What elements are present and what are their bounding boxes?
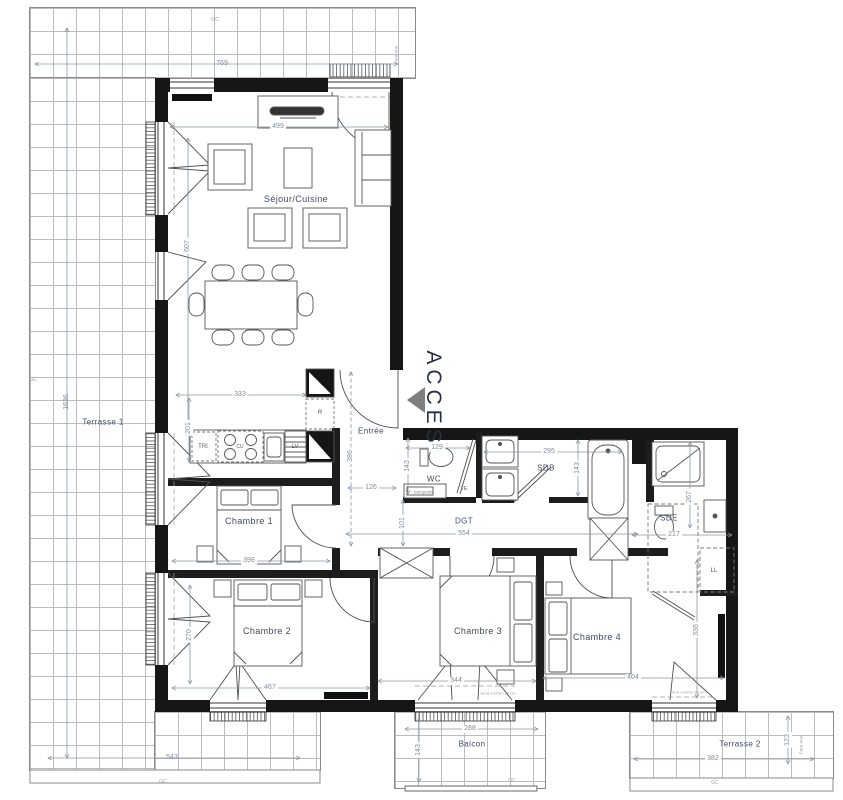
room-label-chambre-2: Chambre 2 xyxy=(243,626,291,636)
room-label-balcon: Balcon xyxy=(459,740,486,749)
shower-icon xyxy=(652,442,704,486)
privacy-screen-label: Pare-vue xyxy=(394,46,399,64)
dim-entree-height: 386 xyxy=(347,448,355,464)
dim-terrasse1-bottom: 543 xyxy=(164,754,180,762)
bed-chambre-3 xyxy=(440,558,536,684)
room-label-sdb: SDB xyxy=(537,464,555,473)
kitchen-fixtures xyxy=(190,369,334,463)
dim-terrasse1-left: 1636 xyxy=(63,392,71,412)
dim-balcon-height: 143 xyxy=(415,742,423,758)
washbasin-icon xyxy=(482,436,518,467)
bed-chambre-2 xyxy=(214,580,322,666)
closet-icon xyxy=(380,548,433,578)
dim-sejour-width: 499 xyxy=(270,123,286,131)
dim-entree-width: 126 xyxy=(363,484,379,492)
bench-label: banquette xyxy=(414,490,434,495)
dim-terrasse2-height: 123 xyxy=(784,732,792,748)
dim-sdb-height: 143 xyxy=(574,460,582,476)
sofa-icon xyxy=(355,130,391,206)
room-label-entree: Entrée xyxy=(358,427,384,436)
dishwasher-label: LV xyxy=(292,444,299,450)
washbasin-icon xyxy=(704,500,726,532)
sink-icon xyxy=(264,433,284,461)
dim-wc-height: 143 xyxy=(404,458,412,474)
dim-balcon-width: 288 xyxy=(462,725,478,733)
dim-chambre4-height: 336 xyxy=(693,622,701,638)
dim-terrasse1-top: 769 xyxy=(214,60,230,68)
tri-label: TRI xyxy=(198,444,208,450)
threshold-label: Seuil environ 15 cm xyxy=(670,690,705,695)
threshold-label: Seuil environ 15 cm xyxy=(480,691,515,696)
dim-sejour-height: 607 xyxy=(184,238,192,254)
sanitary-fixtures xyxy=(380,436,734,592)
room-label-terrasse-1: Terrasse 1 xyxy=(82,418,123,427)
dim-dgt-height: 101 xyxy=(399,515,407,531)
cupboard-icon xyxy=(306,369,334,397)
fridge-label: R xyxy=(318,410,322,416)
dim-sde-width: 217 xyxy=(666,531,682,539)
washbasin-icon xyxy=(482,469,518,500)
dining-table-icon xyxy=(189,265,313,345)
armchair-icon xyxy=(303,208,347,248)
dim-chambre2-height: 270 xyxy=(186,627,194,643)
room-label-wc: WC xyxy=(427,475,441,484)
room-label-terrasse-2: Terrasse 2 xyxy=(719,740,760,749)
room-label-sejour: Séjour/Cuisine xyxy=(264,194,328,204)
room-label-sde: SDE xyxy=(660,514,678,523)
living-room-furniture xyxy=(189,96,391,345)
electrical-panel-label: TE xyxy=(460,486,467,492)
privacy-screen-label: Pare-vue xyxy=(799,736,804,754)
guardrail-label: GC xyxy=(29,377,37,383)
guardrail-label: GC xyxy=(211,17,219,23)
guardrail-label: GC xyxy=(159,779,167,785)
dim-chambre2-width: 467 xyxy=(262,684,278,692)
room-label-chambre-4: Chambre 4 xyxy=(573,632,621,642)
coffee-table-icon xyxy=(284,148,312,188)
guardrail-label: GC xyxy=(711,780,719,786)
dim-sdb-width: 295 xyxy=(541,448,557,456)
dim-sde-height: 267 xyxy=(686,489,694,505)
room-label-dgt: DGT xyxy=(455,517,473,526)
armchair-icon xyxy=(208,144,252,190)
dim-chambre1-width: 398 xyxy=(241,557,257,565)
dim-terrasse2-width: 382 xyxy=(705,755,721,763)
dim-kitchen-height: 201 xyxy=(185,420,193,436)
dim-kitchen-width: 333 xyxy=(232,391,248,399)
room-label-chambre-1: Chambre 1 xyxy=(225,516,273,526)
washing-machine-label: LL xyxy=(711,568,718,574)
cupboard-icon xyxy=(306,431,334,462)
hob-label: CU xyxy=(236,444,243,450)
dim-dgt-width: 554 xyxy=(456,530,472,538)
armchair-icon xyxy=(248,208,292,248)
guardrail-label: GC xyxy=(508,778,516,784)
dim-chambre4-width: 404 xyxy=(625,674,641,682)
floor-plan: Séjour/Cuisine Entrée WC SDB SDE DGT Cha… xyxy=(0,0,843,800)
access-label: ACCES xyxy=(421,350,445,447)
duct-closet-icon xyxy=(590,518,628,560)
room-label-chambre-3: Chambre 3 xyxy=(454,626,502,636)
dim-chambre3-width: 344 xyxy=(448,677,464,685)
